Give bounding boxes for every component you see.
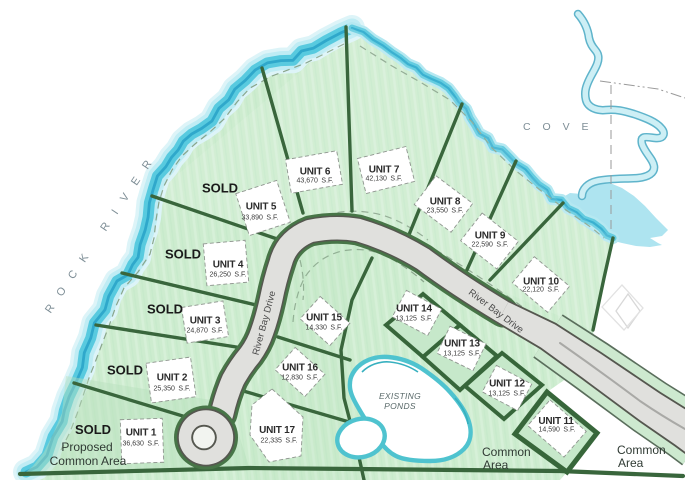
svg-text:SOLD: SOLD (147, 302, 183, 317)
svg-text:UNIT 15: UNIT 15 (306, 313, 342, 324)
svg-text:42,130 S.F.: 42,130 S.F. (366, 176, 403, 183)
svg-text:24,870 S.F.: 24,870 S.F. (187, 328, 224, 335)
svg-text:25,350 S.F.: 25,350 S.F. (154, 386, 191, 393)
svg-text:UNIT 2: UNIT 2 (157, 373, 188, 384)
svg-text:UNIT 11: UNIT 11 (538, 416, 574, 427)
svg-text:UNIT 5: UNIT 5 (246, 202, 277, 213)
svg-text:UNIT 17: UNIT 17 (259, 425, 295, 436)
svg-text:13,125 S.F.: 13,125 S.F. (444, 351, 481, 358)
svg-text:UNIT 3: UNIT 3 (190, 316, 221, 327)
svg-text:SOLD: SOLD (75, 422, 111, 437)
svg-text:SOLD: SOLD (107, 363, 143, 378)
svg-text:14,330 S.F.: 14,330 S.F. (306, 325, 343, 332)
svg-text:14,590 S.F.: 14,590 S.F. (539, 427, 576, 434)
svg-text:UNIT 6: UNIT 6 (300, 167, 331, 178)
svg-text:UNIT 14: UNIT 14 (396, 304, 432, 315)
svg-text:Common: Common (482, 445, 531, 459)
svg-text:SOLD: SOLD (165, 247, 201, 262)
svg-text:UNIT 4: UNIT 4 (213, 260, 244, 271)
svg-text:SOLD: SOLD (202, 181, 238, 196)
svg-text:13,125 S.F.: 13,125 S.F. (396, 316, 433, 323)
svg-text:UNIT 16: UNIT 16 (282, 363, 318, 374)
svg-text:UNIT 9: UNIT 9 (475, 231, 506, 242)
svg-text:22,590 S.F.: 22,590 S.F. (472, 242, 509, 249)
svg-text:UNIT 7: UNIT 7 (369, 165, 400, 176)
svg-text:22,335 S.F.: 22,335 S.F. (261, 438, 298, 445)
svg-text:C O V E: C O V E (523, 121, 593, 133)
svg-text:Proposed: Proposed (61, 440, 112, 454)
svg-text:33,890 S.F.: 33,890 S.F. (242, 215, 279, 222)
svg-text:13,125 S.F.: 13,125 S.F. (489, 391, 526, 398)
svg-text:23,550 S.F.: 23,550 S.F. (427, 208, 464, 215)
svg-text:Common: Common (617, 443, 666, 457)
svg-text:26,250 S.F.: 26,250 S.F. (210, 272, 247, 279)
svg-text:UNIT 8: UNIT 8 (430, 197, 461, 208)
svg-text:EXISTING: EXISTING (379, 391, 421, 401)
svg-text:UNIT 13: UNIT 13 (444, 339, 480, 350)
svg-text:Common Area: Common Area (50, 454, 127, 468)
svg-text:UNIT 12: UNIT 12 (489, 379, 525, 390)
svg-text:12,830 S.F.: 12,830 S.F. (282, 375, 319, 382)
svg-text:PONDS: PONDS (384, 401, 416, 411)
svg-text:Area: Area (483, 458, 509, 472)
svg-text:43,670 S.F.: 43,670 S.F. (297, 178, 334, 185)
svg-text:22,120 S.F.: 22,120 S.F. (523, 287, 560, 294)
svg-text:UNIT 1: UNIT 1 (126, 428, 157, 439)
svg-text:Area: Area (618, 456, 644, 470)
svg-text:36,630 S.F.: 36,630 S.F. (123, 441, 160, 448)
